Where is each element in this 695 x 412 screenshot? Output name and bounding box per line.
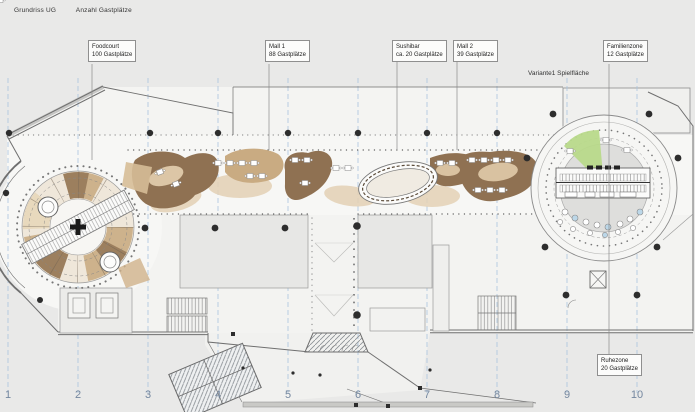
axis-6: 6 (347, 389, 369, 401)
floorplan-page: Grundriss UG Anzahl Gastplätze Foodcourt… (0, 0, 695, 412)
axis-2: 2 (67, 389, 89, 401)
axis-10: 10 (626, 389, 648, 401)
variant-note: Variante1 Spielfläche (528, 70, 589, 77)
label-familienzone: Familienzone 12 Gastplätze (603, 40, 648, 62)
label-mall1: Mall 1 88 Gastplätze (265, 40, 310, 62)
axis-5: 5 (277, 389, 299, 401)
axis-8: 8 (486, 389, 508, 401)
axis-7: 7 (416, 389, 438, 401)
label-sushibar: Sushibar ca. 20 Gastplätze (392, 40, 447, 62)
title-main: Grundriss UG (14, 7, 56, 14)
axis-3: 3 (137, 389, 159, 401)
label-foodcourt: Foodcourt 100 Gastplätze (88, 40, 136, 62)
familienzone-rotunda (531, 115, 677, 261)
drawing-title: Grundriss UG Anzahl Gastplätze (14, 7, 150, 14)
label-mall2: Mall 2 39 Gastplätze (453, 40, 498, 62)
title-sub: Anzahl Gastplätze (76, 7, 132, 14)
axis-1: 1 (0, 389, 19, 401)
axis-4: 4 (207, 389, 229, 401)
label-ruhezone: Ruhezone 20 Gastplätze (597, 354, 642, 376)
axis-9: 9 (556, 389, 578, 401)
